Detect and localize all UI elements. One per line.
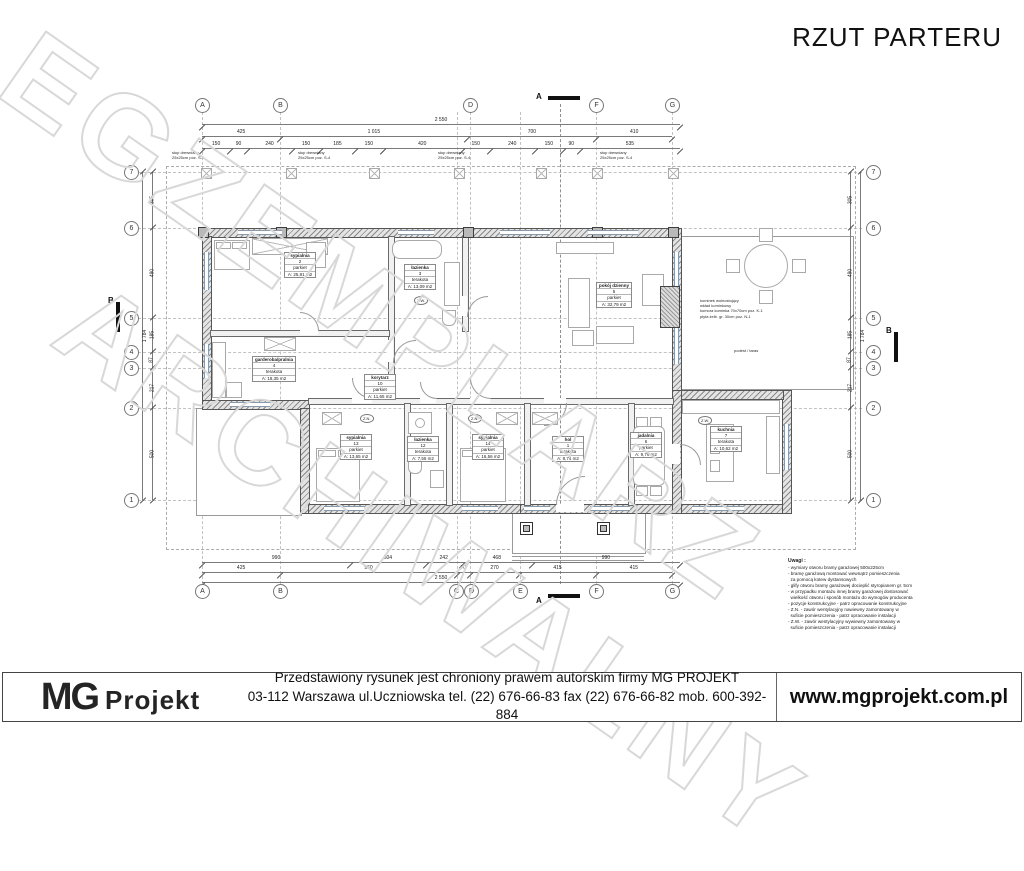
- bathtub: [392, 240, 442, 259]
- website-url[interactable]: www.mgprojekt.com.pl: [776, 673, 1021, 721]
- section-label-a-bottom: A: [536, 596, 542, 605]
- legend-title: Uwagi :: [788, 558, 996, 564]
- axis-marker-left-4: 4: [124, 345, 139, 360]
- sofa: [568, 278, 590, 328]
- terrace-left: [196, 408, 302, 516]
- roof-post: [536, 168, 547, 179]
- dim-bottom-total: 2 550: [202, 576, 680, 583]
- chair: [650, 417, 662, 427]
- axis-marker-right-2: 2: [866, 401, 881, 416]
- axis-marker-bottom-g: G: [665, 584, 680, 599]
- pillow: [216, 242, 231, 249]
- dim-top-detail: 1509024015018515042015024015090535: [202, 142, 680, 149]
- window: [204, 252, 209, 290]
- post-note: słup drewniany25x25cm poz. S-4: [172, 150, 204, 160]
- post-note: słup drewniany25x25cm poz. S-4: [298, 150, 330, 160]
- room-label: łazienka12terakotaA: 7,55 m2: [407, 436, 439, 462]
- wall-interior: [524, 403, 531, 506]
- room-label: hol1terakotaA: 8,74 m2: [552, 436, 584, 462]
- shower-drain: [415, 418, 425, 428]
- wall-exterior-wing-left: [300, 408, 310, 514]
- section-marker-a-top: [548, 96, 580, 100]
- dim-right-total: 1 784: [860, 172, 867, 500]
- window: [462, 506, 498, 511]
- roof-post: [201, 168, 212, 179]
- terrace-table: [744, 244, 788, 288]
- axis-marker-top-f: F: [589, 98, 604, 113]
- wall-pier: [668, 227, 679, 238]
- terrace-note: podest / taras: [734, 348, 758, 353]
- wall-exterior-kitchen-top: [680, 390, 784, 400]
- window: [398, 230, 434, 235]
- dim-bottom-detail: 990504242468990: [202, 556, 680, 563]
- terrace-chair: [792, 259, 806, 273]
- axis-marker-right-5: 5: [866, 311, 881, 326]
- kitchen-sink: [710, 460, 720, 472]
- room-label: pokój dzienny5parkietA: 32,79 m2: [596, 282, 632, 308]
- washing-machine: [226, 382, 242, 398]
- pillow: [232, 242, 247, 249]
- room-label: garderoba/pralnia4terakotaA: 18,35 m2: [252, 356, 296, 382]
- room-label: sypialnia14parkietA: 16,56 m2: [472, 434, 504, 460]
- kitchen-counter: [766, 416, 780, 474]
- section-label-b-left: B: [108, 296, 114, 305]
- window: [324, 506, 364, 511]
- axis-marker-top-g: G: [665, 98, 680, 113]
- door-opening-entrance: [556, 504, 584, 512]
- wall-pier: [198, 227, 209, 238]
- tv-console: [556, 242, 614, 254]
- window: [204, 344, 209, 378]
- room-label: kuchnia7terakotaA: 10,62 m2: [710, 426, 742, 452]
- axis-marker-left-2: 2: [124, 401, 139, 416]
- window: [692, 506, 744, 511]
- room-label: korytarz10parkietA: 11,65 m2: [364, 374, 396, 400]
- vent-symbol-zn: Z.N.: [360, 414, 374, 423]
- axis-marker-left-1: 1: [124, 493, 139, 508]
- axis-marker-top-a: A: [195, 98, 210, 113]
- roof-post: [286, 168, 297, 179]
- post-note: słup drewniany25x25cm poz. S-4: [600, 150, 632, 160]
- address-line: 03-112 Warszawa ul.Uczniowska tel. (22) …: [238, 688, 776, 726]
- window: [230, 402, 270, 407]
- room-label: sypialnia13parkietA: 13,65 m2: [340, 434, 372, 460]
- roof-post: [592, 168, 603, 179]
- copyright-block: Przedstawiony rysunek jest chroniony pra…: [238, 669, 776, 726]
- legend-notes: Uwagi : - wymiary otworu bramy garażowej…: [788, 558, 996, 631]
- section-marker-b-left: [116, 302, 120, 332]
- drawing-sheet: { "watermark": {"line1": "EGZEMPLARZ", "…: [0, 0, 1024, 724]
- section-label-a-top: A: [536, 92, 542, 101]
- window: [590, 506, 630, 511]
- kitchen-counter: [682, 400, 780, 414]
- chair: [636, 486, 648, 496]
- axis-marker-bottom-d: D: [464, 584, 479, 599]
- porch-column: [597, 522, 610, 535]
- fireplace-note: kominek wolnostojącywkład kominkowykomor…: [700, 298, 763, 319]
- axis-marker-bottom-e: E: [513, 584, 528, 599]
- dim-left-axes: 30549018587217500: [152, 172, 159, 500]
- wall-pier: [463, 227, 474, 238]
- logo-mg: MG: [41, 676, 98, 719]
- roof-post: [454, 168, 465, 179]
- axis-marker-right-3: 3: [866, 361, 881, 376]
- window: [500, 230, 550, 235]
- shelf-unit: [264, 337, 296, 351]
- dim-bottom-axes: 42596070270415415: [202, 566, 672, 573]
- wardrobe: [212, 342, 226, 398]
- room-label: łazienka3terakotaA: 13,09 m2: [404, 264, 436, 290]
- chair: [650, 486, 662, 496]
- window: [588, 230, 638, 235]
- page-title: RZUT PARTERU: [792, 22, 1002, 53]
- window: [784, 424, 789, 470]
- chair: [636, 417, 648, 427]
- axis-marker-top-b: B: [273, 98, 288, 113]
- wardrobe: [322, 412, 342, 425]
- window: [524, 506, 550, 511]
- dim-top-total: 2 550: [202, 118, 680, 125]
- axis-marker-right-6: 6: [866, 221, 881, 236]
- porch-column: [520, 522, 533, 535]
- bathroom-cabinet: [444, 262, 460, 306]
- toilet: [442, 310, 456, 326]
- dim-left-total: 1 784: [142, 172, 149, 500]
- window: [238, 230, 282, 235]
- axis-marker-right-7: 7: [866, 165, 881, 180]
- terrace-chair: [759, 228, 773, 242]
- axis-marker-left-3: 3: [124, 361, 139, 376]
- dim-top-axes: 4251 015700410: [202, 130, 672, 137]
- axis-marker-bottom-f: F: [589, 584, 604, 599]
- terrace-chair: [726, 259, 740, 273]
- section-label-b-right: B: [886, 326, 892, 335]
- fireplace: [660, 286, 680, 328]
- axis-marker-left-7: 7: [124, 165, 139, 180]
- logo-projekt: Projekt: [105, 685, 200, 716]
- coffee-table: [572, 330, 594, 346]
- post-note: słup drewniany25x25cm poz. S-4: [438, 150, 470, 160]
- washbasin: [430, 470, 444, 488]
- axis-marker-left-6: 6: [124, 221, 139, 236]
- dim-right-axes: 30549018587217500: [850, 172, 857, 500]
- axis-marker-bottom-a: A: [195, 584, 210, 599]
- door-opening: [672, 444, 680, 464]
- axis-marker-left-5: 5: [124, 311, 139, 326]
- wall-interior: [462, 236, 469, 332]
- axis-marker-right-1: 1: [866, 493, 881, 508]
- mgprojekt-logo: MG Projekt: [3, 676, 238, 719]
- roof-post: [369, 168, 380, 179]
- legend-lines: - wymiary otworu bramy garażowej 500x225…: [788, 565, 996, 631]
- room-label: sypialnia2parkietA: 25,91 m2: [284, 252, 316, 278]
- room-label: jadalnia6parkietA: 9,79 m2: [630, 432, 662, 458]
- section-marker-a-bottom: [548, 594, 580, 598]
- section-marker-b-right: [894, 332, 898, 362]
- vent-symbol-zn: Z.N.: [468, 414, 482, 423]
- axis-marker-top-d: D: [463, 98, 478, 113]
- axis-marker-bottom-c: C: [449, 584, 464, 599]
- copyright-line: Przedstawiony rysunek jest chroniony pra…: [238, 669, 776, 688]
- pillow: [318, 450, 336, 457]
- axis-marker-bottom-b: B: [273, 584, 288, 599]
- roof-post: [668, 168, 679, 179]
- wall-interior: [446, 403, 453, 506]
- title-block: MG Projekt Przedstawiony rysunek jest ch…: [2, 672, 1022, 722]
- wardrobe: [496, 412, 518, 425]
- sofa: [596, 326, 634, 344]
- axis-marker-right-4: 4: [866, 345, 881, 360]
